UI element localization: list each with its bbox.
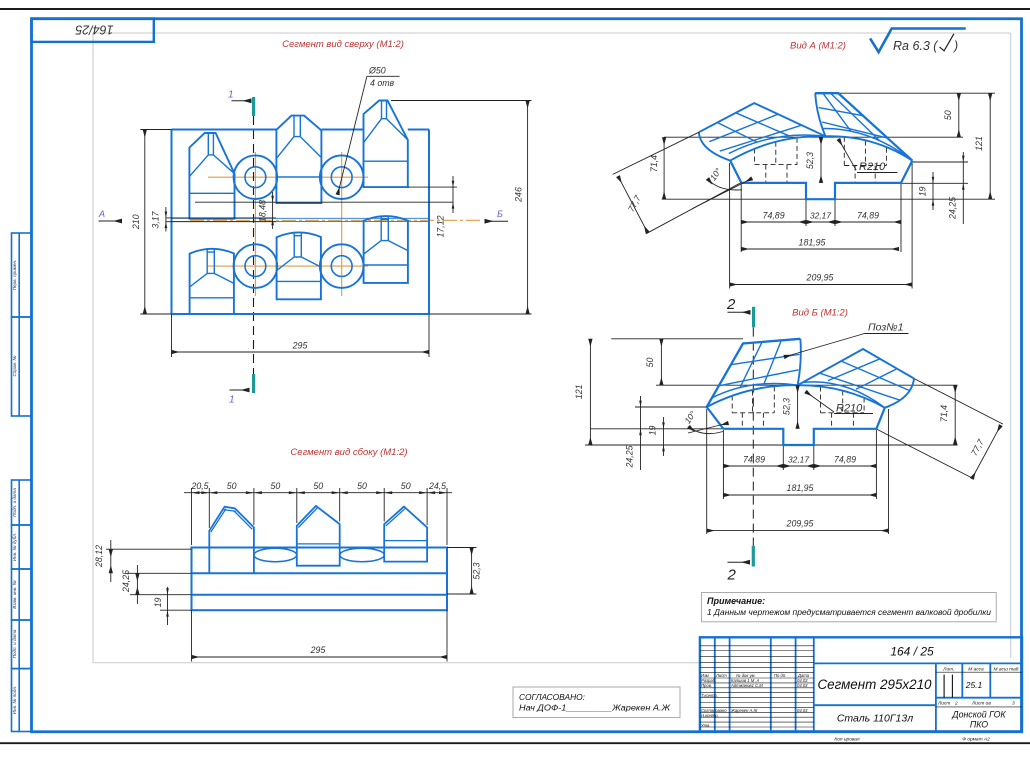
svg-text:М асш таб: М асш таб: [993, 667, 1018, 673]
svg-text:50: 50: [313, 481, 323, 491]
svg-text:19: 19: [918, 187, 928, 197]
svg-text:50: 50: [227, 481, 237, 491]
svg-text:04.03: 04.03: [797, 683, 808, 688]
svg-text:Взам. инв. №: Взам. инв. №: [12, 580, 17, 608]
svg-text:74,89: 74,89: [763, 211, 785, 221]
svg-text:52,3: 52,3: [782, 398, 792, 415]
svg-text:24,25: 24,25: [948, 197, 958, 220]
svg-text:32,17: 32,17: [810, 211, 831, 221]
svg-text:ПКО: ПКО: [970, 720, 988, 730]
svg-text:50: 50: [357, 481, 367, 491]
svg-text:295: 295: [292, 341, 308, 351]
svg-text:32,17: 32,17: [788, 455, 809, 465]
svg-text:17,12: 17,12: [436, 215, 446, 237]
svg-text:19: 19: [153, 598, 163, 608]
svg-text:18,48: 18,48: [258, 200, 268, 222]
svg-text:Инв. № подл.: Инв. № подл.: [12, 686, 17, 715]
svg-text:209,95: 209,95: [806, 273, 834, 283]
svg-text:3: 3: [1012, 701, 1015, 707]
svg-text:Коп ировал: Коп ировал: [834, 736, 859, 742]
svg-text:2: 2: [726, 296, 736, 313]
svg-text:52,3: 52,3: [472, 562, 482, 579]
svg-text:Инв. № дубл.: Инв. № дубл.: [12, 533, 17, 561]
svg-text:24,25: 24,25: [121, 570, 131, 593]
svg-text:Нач ДОФ-1_________Жарекен А.Ж: Нач ДОФ-1_________Жарекен А.Ж: [519, 703, 671, 713]
svg-text:24,5: 24,5: [428, 481, 446, 491]
svg-text:74,89: 74,89: [857, 211, 879, 221]
svg-text:М асса: М асса: [968, 667, 984, 673]
svg-text:164/25: 164/25: [75, 23, 113, 37]
svg-text:Пров.: Пров.: [701, 683, 712, 688]
svg-text:50: 50: [645, 358, 655, 368]
svg-text:295: 295: [310, 645, 326, 655]
svg-text:10°: 10°: [708, 166, 724, 183]
svg-text:71,4: 71,4: [939, 405, 949, 422]
svg-text:Ø50: Ø50: [368, 66, 386, 76]
svg-text:СОГЛАСОВАНО:: СОГЛАСОВАНО:: [519, 692, 586, 702]
svg-text:Лист: Лист: [715, 673, 727, 678]
svg-text:Н.контр.: Н.контр.: [701, 713, 719, 718]
svg-text:28,12: 28,12: [94, 545, 104, 568]
svg-text:Вид Б (М1:2): Вид Б (М1:2): [792, 308, 848, 319]
svg-text:Подп. и дата: Подп. и дата: [12, 629, 17, 658]
svg-text:50: 50: [401, 481, 411, 491]
svg-text:19: 19: [648, 426, 658, 436]
svg-text:Т.контр.: Т.контр.: [701, 693, 718, 698]
svg-text:2: 2: [954, 701, 958, 707]
svg-text:Примечание:: Примечание:: [707, 596, 765, 606]
svg-text:74,89: 74,89: [743, 455, 765, 465]
svg-text:Сегмент 295х210: Сегмент 295х210: [818, 677, 932, 692]
svg-text:Айтжанов1 С.М: Айтжанов1 С.М: [730, 683, 763, 688]
svg-text:121: 121: [574, 384, 584, 399]
svg-text:74,89: 74,89: [834, 455, 856, 465]
svg-text:По дп.: По дп.: [774, 673, 786, 678]
svg-text:10°: 10°: [682, 409, 698, 426]
svg-text:50: 50: [271, 481, 281, 491]
svg-text:Поз№1: Поз№1: [868, 322, 903, 334]
svg-text:1 Данным чертежом предусматрив: 1 Данным чертежом предусматривается сегм…: [707, 607, 991, 617]
svg-text:Ra 6.3 (: Ra 6.3 (: [893, 39, 939, 53]
svg-text:Б: Б: [497, 209, 503, 219]
svg-text:А: А: [98, 209, 105, 219]
svg-text:52,3: 52,3: [805, 152, 815, 169]
svg-text:Донской ГОК: Донской ГОК: [951, 710, 1006, 720]
svg-text:24,25: 24,25: [625, 445, 635, 468]
svg-text:77,7: 77,7: [969, 437, 986, 458]
svg-text:121: 121: [974, 136, 984, 151]
svg-text:Утв.: Утв.: [701, 723, 711, 728]
svg-text:Ф ормат А2: Ф ормат А2: [962, 736, 990, 742]
svg-text:1: 1: [228, 90, 234, 101]
svg-text:4 отв: 4 отв: [370, 78, 395, 88]
svg-text:Справ. №: Справ. №: [12, 356, 17, 377]
svg-text:50: 50: [943, 110, 953, 120]
svg-text:04.03: 04.03: [797, 708, 808, 713]
svg-text:246: 246: [514, 187, 524, 203]
svg-text:): ): [952, 39, 958, 53]
svg-text:181,95: 181,95: [787, 483, 814, 493]
svg-text:Лист: Лист: [937, 701, 950, 707]
svg-text:209,95: 209,95: [786, 519, 814, 529]
svg-text:Лист ов: Лист ов: [971, 701, 991, 707]
svg-text:Лит.: Лит.: [942, 667, 954, 673]
svg-text:71,4: 71,4: [649, 155, 659, 172]
svg-text:1: 1: [229, 395, 235, 406]
svg-text:Сталь 110Г13л: Сталь 110Г13л: [837, 713, 913, 725]
svg-text:Сегмент вид сверху (М1:2): Сегмент вид сверху (М1:2): [282, 39, 404, 50]
svg-text:210: 210: [131, 214, 141, 230]
svg-text:Вид А (М1:2): Вид А (М1:2): [790, 41, 846, 52]
svg-text:Перв. примен.: Перв. примен.: [12, 260, 17, 291]
svg-text:20,5: 20,5: [190, 481, 208, 491]
svg-text:R210: R210: [836, 403, 863, 415]
svg-text:181,95: 181,95: [799, 238, 826, 248]
svg-text:164 / 25: 164 / 25: [890, 645, 934, 659]
svg-text:3,17: 3,17: [151, 210, 161, 228]
svg-text:25.1: 25.1: [965, 680, 983, 690]
svg-text:2: 2: [727, 567, 737, 584]
svg-text:Сегмент вид сбоку (М1:2): Сегмент вид сбоку (М1:2): [290, 447, 407, 458]
svg-text:R210: R210: [859, 161, 886, 173]
svg-text:Подп. и дата: Подп. и дата: [12, 488, 17, 517]
svg-text:Жарекен А.Ж: Жарекен А.Ж: [730, 708, 759, 713]
